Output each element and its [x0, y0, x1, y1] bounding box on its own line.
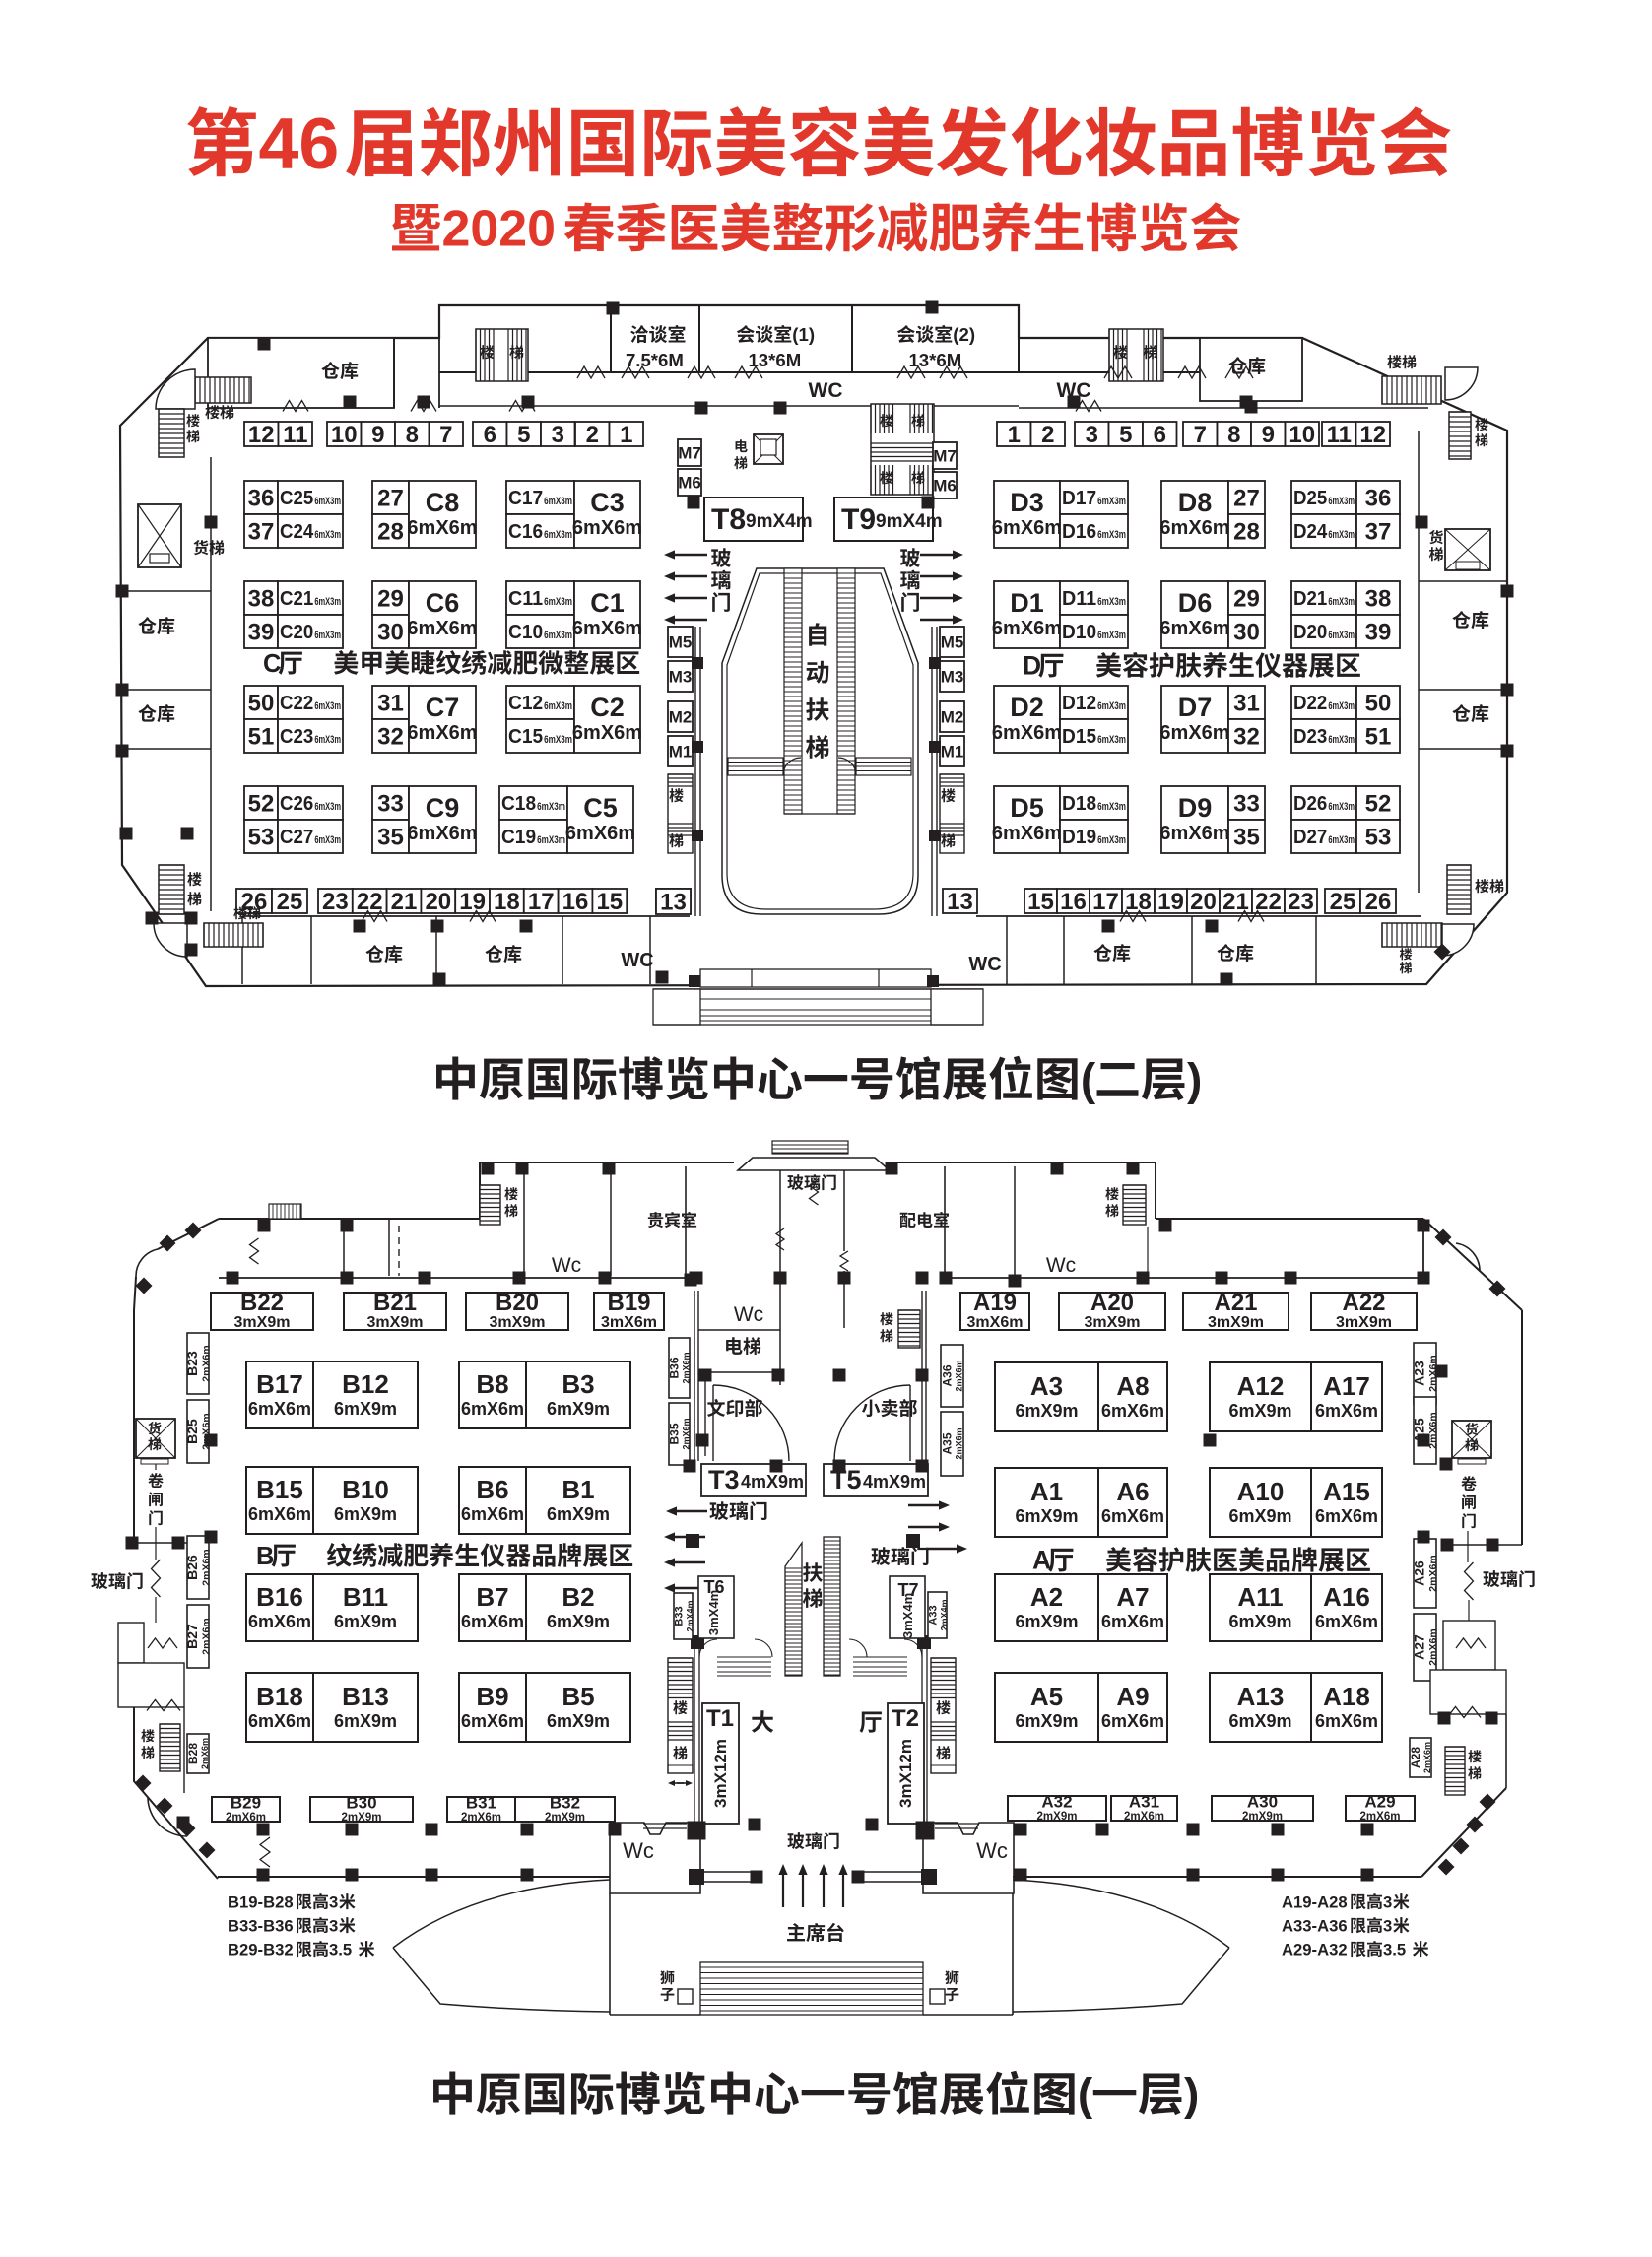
- svg-text:27: 27: [377, 486, 404, 512]
- svg-text:2mX6m: 2mX6m: [461, 1812, 501, 1824]
- svg-text:6mX6m: 6mX6m: [461, 1612, 524, 1631]
- svg-text:6mX3m: 6mX3m: [1097, 801, 1126, 813]
- svg-text:3mX9m: 3mX9m: [1085, 1314, 1141, 1331]
- svg-text:36: 36: [248, 486, 275, 512]
- svg-text:A36: A36: [941, 1364, 955, 1386]
- svg-text:B1: B1: [562, 1475, 594, 1504]
- svg-text:3.5: 3.5: [329, 1940, 352, 1958]
- svg-text:C25: C25: [280, 488, 313, 509]
- svg-text:3mX6m: 3mX6m: [967, 1314, 1024, 1331]
- svg-text:6mX3m: 6mX3m: [1328, 801, 1355, 813]
- svg-text:23: 23: [322, 889, 349, 915]
- svg-text:3mX9m: 3mX9m: [490, 1314, 546, 1331]
- svg-text:6mX3m: 6mX3m: [1328, 529, 1355, 541]
- svg-text:C10: C10: [508, 622, 543, 643]
- svg-text:50: 50: [1365, 691, 1392, 717]
- svg-text:19: 19: [459, 889, 486, 915]
- svg-text:A26: A26: [1412, 1560, 1427, 1586]
- svg-text:6mX6m: 6mX6m: [992, 722, 1062, 744]
- svg-text:(: (: [1078, 2068, 1093, 2119]
- svg-text:B5: B5: [562, 1682, 594, 1711]
- svg-text:30: 30: [377, 620, 404, 646]
- svg-text:15: 15: [596, 889, 623, 915]
- svg-text:3mX12m: 3mX12m: [711, 1739, 730, 1808]
- svg-text:2mX9m: 2mX9m: [545, 1812, 585, 1824]
- svg-text:C19: C19: [501, 827, 536, 848]
- svg-text:D19: D19: [1062, 827, 1096, 848]
- svg-text:A1: A1: [1030, 1477, 1063, 1506]
- svg-text:D18: D18: [1062, 793, 1096, 815]
- svg-text:10: 10: [331, 422, 358, 448]
- svg-text:50: 50: [248, 691, 275, 717]
- svg-text:3: 3: [1086, 422, 1098, 448]
- svg-text:B23: B23: [184, 1351, 200, 1376]
- svg-text:3mX4m: 3mX4m: [706, 1590, 721, 1635]
- svg-text:B33: B33: [674, 1606, 686, 1626]
- svg-text:D7: D7: [1178, 693, 1213, 722]
- svg-text:A33-A36: A33-A36: [1282, 1916, 1348, 1935]
- svg-text:6mX6m: 6mX6m: [407, 517, 477, 539]
- svg-text:6mX6m: 6mX6m: [248, 1711, 311, 1731]
- svg-text:A33: A33: [928, 1605, 940, 1625]
- svg-text:Wc: Wc: [1046, 1254, 1076, 1277]
- svg-text:6mX3m: 6mX3m: [314, 801, 341, 813]
- svg-text:8: 8: [406, 422, 419, 448]
- svg-text:6mX3m: 6mX3m: [537, 834, 565, 846]
- svg-text:B: B: [256, 1543, 274, 1570]
- svg-text:6mX6m: 6mX6m: [407, 722, 477, 744]
- svg-text:28: 28: [377, 519, 404, 546]
- svg-text:A29-A32: A29-A32: [1282, 1940, 1348, 1958]
- svg-text:Wc: Wc: [623, 1838, 654, 1863]
- svg-text:A32: A32: [1041, 1793, 1072, 1812]
- svg-text:B7: B7: [476, 1582, 508, 1612]
- svg-text:6mX3m: 6mX3m: [314, 630, 341, 641]
- svg-text:A16: A16: [1323, 1582, 1370, 1612]
- svg-text:53: 53: [248, 825, 275, 851]
- svg-text:21: 21: [391, 889, 418, 915]
- svg-text:6mX9m: 6mX9m: [547, 1399, 610, 1419]
- svg-text:6mX3m: 6mX3m: [314, 529, 341, 541]
- svg-text:M5: M5: [669, 633, 693, 652]
- svg-text:2mX6m: 2mX6m: [955, 1427, 964, 1459]
- svg-text:A17: A17: [1323, 1371, 1370, 1401]
- svg-text:33: 33: [377, 791, 404, 818]
- svg-text:B22: B22: [240, 1290, 284, 1316]
- svg-text:2mX6m: 2mX6m: [1360, 1811, 1401, 1823]
- svg-text:6mX6m: 6mX6m: [407, 618, 477, 639]
- svg-text:6mX6m: 6mX6m: [1315, 1401, 1378, 1421]
- svg-text:35: 35: [1233, 825, 1260, 851]
- svg-text:6mX9m: 6mX9m: [1015, 1711, 1078, 1731]
- svg-text:B17: B17: [256, 1369, 303, 1399]
- svg-text:6mX9m: 6mX9m: [334, 1399, 397, 1419]
- svg-text:37: 37: [248, 519, 275, 546]
- svg-text:3: 3: [1383, 1916, 1392, 1935]
- svg-text:32: 32: [1233, 724, 1260, 751]
- svg-text:6mX3m: 6mX3m: [1097, 734, 1126, 746]
- svg-text:6mX3m: 6mX3m: [1328, 734, 1355, 746]
- svg-text:6: 6: [1154, 422, 1166, 448]
- svg-text:3: 3: [329, 1916, 338, 1935]
- svg-text:6mX3m: 6mX3m: [1328, 630, 1355, 641]
- svg-text:2: 2: [1041, 422, 1054, 448]
- svg-text:C15: C15: [508, 726, 543, 748]
- svg-text:D27: D27: [1293, 827, 1327, 848]
- svg-text:2mX6m: 2mX6m: [201, 1345, 213, 1381]
- svg-text:3mX9m: 3mX9m: [1336, 1314, 1392, 1331]
- svg-text:A20: A20: [1090, 1290, 1134, 1316]
- svg-text:D16: D16: [1062, 521, 1096, 543]
- svg-text:6mX3m: 6mX3m: [1328, 596, 1355, 608]
- svg-text:A21: A21: [1214, 1290, 1257, 1316]
- svg-text:B3: B3: [562, 1369, 594, 1399]
- svg-text:6mX6m: 6mX6m: [1159, 517, 1229, 539]
- svg-text:6mX6m: 6mX6m: [572, 722, 642, 744]
- svg-text:6mX9m: 6mX9m: [1228, 1711, 1291, 1731]
- svg-text:16: 16: [562, 889, 589, 915]
- svg-text:17: 17: [1092, 889, 1119, 915]
- svg-text:6mX3m: 6mX3m: [1097, 496, 1126, 507]
- svg-text:6mX6m: 6mX6m: [1101, 1711, 1164, 1731]
- svg-text:B30: B30: [346, 1794, 376, 1813]
- svg-text:6mX6m: 6mX6m: [248, 1504, 311, 1524]
- svg-text:C1: C1: [590, 588, 625, 618]
- svg-text:A6: A6: [1116, 1477, 1149, 1506]
- svg-text:A29: A29: [1364, 1793, 1395, 1812]
- svg-text:51: 51: [1365, 724, 1392, 751]
- svg-text:B8: B8: [476, 1369, 508, 1399]
- svg-text:2mX6m: 2mX6m: [201, 1549, 213, 1585]
- svg-text:25: 25: [1330, 889, 1356, 915]
- svg-text:A2: A2: [1030, 1582, 1063, 1612]
- svg-text:6mX9m: 6mX9m: [1015, 1612, 1078, 1631]
- svg-text:M6: M6: [678, 474, 701, 493]
- svg-text:D25: D25: [1293, 488, 1327, 509]
- svg-text:1: 1: [620, 422, 632, 448]
- svg-text:2mX6m: 2mX6m: [201, 1618, 213, 1654]
- svg-text:B10: B10: [342, 1475, 389, 1504]
- svg-text:39: 39: [248, 620, 275, 646]
- svg-text:6mX3m: 6mX3m: [537, 801, 565, 813]
- svg-text:37: 37: [1365, 519, 1392, 546]
- svg-text:B12: B12: [342, 1369, 389, 1399]
- svg-text:Wc: Wc: [552, 1254, 581, 1277]
- svg-text:C20: C20: [280, 622, 313, 643]
- svg-text:7: 7: [439, 422, 452, 448]
- svg-text:B18: B18: [256, 1682, 303, 1711]
- svg-text:C22: C22: [280, 693, 313, 714]
- svg-text:M7: M7: [678, 444, 701, 463]
- svg-text:D8: D8: [1178, 488, 1213, 517]
- svg-text:4mX9m: 4mX9m: [741, 1472, 804, 1492]
- svg-text:6mX6m: 6mX6m: [572, 517, 642, 539]
- svg-text:22: 22: [357, 889, 383, 915]
- svg-text:2mX6m: 2mX6m: [682, 1352, 692, 1383]
- svg-text:D1: D1: [1010, 588, 1044, 618]
- svg-text:2mX6m: 2mX6m: [955, 1360, 964, 1391]
- svg-text:6mX6m: 6mX6m: [1315, 1506, 1378, 1526]
- svg-text:2mX4m: 2mX4m: [686, 1600, 695, 1631]
- svg-text:C27: C27: [280, 827, 313, 848]
- svg-text:9: 9: [1262, 422, 1275, 448]
- svg-text:26: 26: [1365, 889, 1392, 915]
- svg-text:6mX6m: 6mX6m: [407, 823, 477, 844]
- svg-text:2: 2: [586, 422, 599, 448]
- svg-text:36: 36: [1365, 486, 1392, 512]
- svg-text:6mX3m: 6mX3m: [544, 630, 572, 641]
- svg-text:6mX6m: 6mX6m: [565, 823, 635, 844]
- svg-text:C12: C12: [508, 693, 543, 714]
- svg-text:3mX6m: 3mX6m: [601, 1314, 657, 1331]
- svg-text:51: 51: [248, 724, 275, 751]
- svg-text:M1: M1: [941, 743, 964, 762]
- svg-text:B19: B19: [607, 1290, 650, 1316]
- svg-text:D15: D15: [1062, 726, 1096, 748]
- svg-text:A12: A12: [1237, 1371, 1285, 1401]
- svg-text:C8: C8: [426, 488, 460, 517]
- svg-text:6mX6m: 6mX6m: [461, 1504, 524, 1524]
- svg-text:6mX3m: 6mX3m: [314, 596, 341, 608]
- svg-text:A19-A28: A19-A28: [1282, 1892, 1348, 1911]
- svg-text:B21: B21: [373, 1290, 417, 1316]
- svg-text:6mX3m: 6mX3m: [314, 734, 341, 746]
- svg-text:C5: C5: [583, 793, 618, 823]
- svg-text:16: 16: [1060, 889, 1087, 915]
- svg-text:C26: C26: [280, 793, 313, 815]
- svg-text:B32: B32: [550, 1794, 580, 1813]
- svg-text:C24: C24: [280, 521, 314, 543]
- svg-text:19: 19: [1157, 889, 1184, 915]
- svg-text:M3: M3: [669, 668, 693, 687]
- svg-text:20: 20: [425, 889, 451, 915]
- svg-text:6: 6: [484, 422, 496, 448]
- svg-text:C: C: [263, 650, 281, 678]
- svg-text:6mX3m: 6mX3m: [314, 700, 341, 712]
- svg-text:9mX4m: 9mX4m: [746, 511, 813, 532]
- svg-text:B2: B2: [562, 1582, 594, 1612]
- svg-text:38: 38: [1365, 586, 1392, 613]
- svg-text:7: 7: [1194, 422, 1207, 448]
- svg-text:D17: D17: [1062, 488, 1096, 509]
- svg-text:13: 13: [660, 890, 687, 916]
- svg-text:C18: C18: [501, 793, 536, 815]
- svg-text:Wc: Wc: [734, 1303, 763, 1326]
- svg-text:B6: B6: [476, 1475, 508, 1504]
- svg-text:6mX6m: 6mX6m: [572, 618, 642, 639]
- svg-text:T3: T3: [708, 1465, 740, 1494]
- svg-text:3: 3: [1383, 1892, 1392, 1911]
- svg-text:B19-B28: B19-B28: [228, 1892, 294, 1911]
- svg-text:D21: D21: [1293, 588, 1327, 610]
- svg-text:A13: A13: [1237, 1682, 1285, 1711]
- svg-text:D11: D11: [1062, 588, 1096, 610]
- svg-text:27: 27: [1233, 486, 1260, 512]
- svg-text:6mX6m: 6mX6m: [1101, 1612, 1164, 1631]
- svg-text:2mX9m: 2mX9m: [1242, 1811, 1283, 1823]
- svg-text:D23: D23: [1293, 726, 1327, 748]
- svg-text:M2: M2: [941, 708, 964, 727]
- svg-text:6mX9m: 6mX9m: [547, 1612, 610, 1631]
- svg-text:2mX6m: 2mX6m: [1124, 1811, 1164, 1823]
- svg-text:6mX6m: 6mX6m: [1315, 1711, 1378, 1731]
- svg-text:T2: T2: [892, 1705, 919, 1732]
- svg-text:20: 20: [1190, 889, 1217, 915]
- svg-text:6mX6m: 6mX6m: [1101, 1506, 1164, 1526]
- svg-text:A28: A28: [1409, 1747, 1422, 1768]
- svg-text:52: 52: [248, 791, 275, 818]
- svg-text:C6: C6: [426, 588, 460, 618]
- svg-text:D5: D5: [1010, 793, 1044, 823]
- svg-text:3mX4m: 3mX4m: [900, 1593, 915, 1638]
- svg-text:3mX9m: 3mX9m: [1208, 1314, 1264, 1331]
- svg-text:C3: C3: [590, 488, 625, 517]
- svg-text:3mX12m: 3mX12m: [896, 1739, 915, 1808]
- svg-text:3.5: 3.5: [1383, 1940, 1406, 1958]
- svg-text:B15: B15: [256, 1475, 303, 1504]
- svg-text:30: 30: [1233, 620, 1260, 646]
- svg-text:6mX6m: 6mX6m: [1159, 823, 1229, 844]
- svg-text:T1: T1: [706, 1705, 734, 1732]
- svg-text:D9: D9: [1178, 793, 1213, 823]
- svg-text:M7: M7: [933, 447, 957, 466]
- svg-text:): ): [1187, 1053, 1202, 1104]
- svg-text:6mX6m: 6mX6m: [461, 1711, 524, 1731]
- svg-text:5: 5: [1119, 422, 1132, 448]
- svg-text:4mX9m: 4mX9m: [863, 1472, 926, 1492]
- svg-text:B9: B9: [476, 1682, 508, 1711]
- svg-text:39: 39: [1365, 620, 1392, 646]
- svg-text:29: 29: [377, 586, 404, 613]
- svg-text:25: 25: [277, 889, 303, 915]
- svg-text:A19: A19: [973, 1290, 1017, 1316]
- svg-text:6mX9m: 6mX9m: [1228, 1612, 1291, 1631]
- svg-text:D: D: [1023, 651, 1041, 681]
- svg-text:A22: A22: [1342, 1290, 1385, 1316]
- svg-text:A18: A18: [1323, 1682, 1370, 1711]
- svg-text:33: 33: [1233, 791, 1260, 818]
- svg-text:Wc: Wc: [976, 1838, 1008, 1863]
- svg-text:32: 32: [377, 724, 404, 751]
- svg-text:(2): (2): [953, 324, 975, 345]
- svg-text:12: 12: [248, 422, 275, 448]
- svg-text:35: 35: [377, 825, 404, 851]
- svg-text:B20: B20: [496, 1290, 539, 1316]
- svg-text:6mX3m: 6mX3m: [1097, 529, 1126, 541]
- svg-text:3: 3: [329, 1892, 338, 1911]
- svg-text:22: 22: [1255, 889, 1282, 915]
- svg-text:2mX4m: 2mX4m: [940, 1599, 950, 1630]
- svg-text:B35: B35: [668, 1423, 682, 1444]
- svg-text:6mX9m: 6mX9m: [1228, 1506, 1291, 1526]
- svg-text:D10: D10: [1062, 622, 1096, 643]
- svg-text:C16: C16: [508, 521, 543, 543]
- svg-text:5: 5: [517, 422, 530, 448]
- svg-text:B28: B28: [186, 1743, 200, 1764]
- svg-text:D20: D20: [1293, 622, 1327, 643]
- svg-text:A11: A11: [1237, 1582, 1283, 1612]
- svg-text:D12: D12: [1062, 693, 1096, 714]
- svg-text:3mX9m: 3mX9m: [367, 1314, 424, 1331]
- svg-text:B13: B13: [342, 1682, 389, 1711]
- svg-text:M6: M6: [933, 477, 957, 496]
- svg-text:18: 18: [494, 889, 520, 915]
- svg-text:C21: C21: [280, 588, 313, 610]
- svg-text:B29-B32: B29-B32: [228, 1940, 294, 1958]
- svg-text:B33-B36: B33-B36: [228, 1916, 294, 1935]
- svg-text:WC: WC: [809, 379, 843, 402]
- svg-text:6mX3m: 6mX3m: [544, 734, 572, 746]
- svg-text:1: 1: [1008, 422, 1021, 448]
- svg-text:23: 23: [1288, 889, 1314, 915]
- svg-text:): ): [1184, 2068, 1199, 2119]
- svg-text:(1): (1): [792, 324, 815, 345]
- svg-text:A: A: [1032, 1546, 1051, 1575]
- svg-text:C17: C17: [508, 488, 543, 509]
- svg-text:M5: M5: [941, 633, 964, 652]
- svg-text:6mX9m: 6mX9m: [547, 1504, 610, 1524]
- svg-text:6mX3m: 6mX3m: [314, 496, 341, 507]
- svg-text:53: 53: [1365, 825, 1392, 851]
- svg-text:A3: A3: [1030, 1371, 1063, 1401]
- svg-text:6mX3m: 6mX3m: [1097, 630, 1126, 641]
- svg-text:6mX3m: 6mX3m: [1097, 596, 1126, 608]
- svg-text:2mX6m: 2mX6m: [200, 1738, 210, 1769]
- svg-text:A15: A15: [1323, 1477, 1370, 1506]
- svg-text:9: 9: [371, 422, 384, 448]
- svg-text:6mX6m: 6mX6m: [992, 618, 1062, 639]
- svg-text:6mX6m: 6mX6m: [248, 1612, 311, 1631]
- svg-text:6mX6m: 6mX6m: [992, 517, 1062, 539]
- svg-text:6mX9m: 6mX9m: [1015, 1506, 1078, 1526]
- svg-text:6mX9m: 6mX9m: [334, 1612, 397, 1631]
- svg-text:A30: A30: [1247, 1793, 1278, 1812]
- svg-text:38: 38: [248, 586, 275, 613]
- svg-text:6mX6m: 6mX6m: [461, 1399, 524, 1419]
- svg-text:10: 10: [1289, 422, 1315, 448]
- svg-text:6mX3m: 6mX3m: [1097, 834, 1126, 846]
- svg-text:17: 17: [528, 889, 555, 915]
- svg-text:6mX3m: 6mX3m: [1328, 496, 1355, 507]
- svg-text:(: (: [1081, 1053, 1096, 1104]
- svg-text:11: 11: [283, 422, 307, 448]
- svg-text:6mX9m: 6mX9m: [334, 1711, 397, 1731]
- svg-text:A10: A10: [1237, 1477, 1285, 1506]
- svg-text:B25: B25: [184, 1419, 200, 1444]
- svg-text:2mX6m: 2mX6m: [1427, 1555, 1439, 1591]
- svg-text:2mX6m: 2mX6m: [226, 1812, 266, 1824]
- svg-text:6mX6m: 6mX6m: [1159, 618, 1229, 639]
- svg-text:6mX3m: 6mX3m: [1328, 834, 1355, 846]
- svg-text:D6: D6: [1178, 588, 1213, 618]
- svg-text:D22: D22: [1293, 693, 1327, 714]
- svg-text:6mX3m: 6mX3m: [544, 700, 572, 712]
- svg-text:C2: C2: [590, 693, 625, 722]
- svg-text:B27: B27: [184, 1624, 200, 1649]
- svg-text:D2: D2: [1010, 693, 1044, 722]
- svg-text:2mX9m: 2mX9m: [342, 1812, 382, 1824]
- svg-text:2mX6m: 2mX6m: [1427, 1628, 1439, 1665]
- svg-text:B31: B31: [466, 1794, 496, 1813]
- svg-text:T9: T9: [841, 503, 876, 536]
- svg-text:M2: M2: [669, 708, 693, 727]
- svg-text:6mX9m: 6mX9m: [1228, 1401, 1291, 1421]
- svg-text:T8: T8: [711, 503, 746, 536]
- svg-text:A9: A9: [1116, 1682, 1149, 1711]
- svg-text:B16: B16: [256, 1582, 303, 1612]
- svg-text:WC: WC: [968, 954, 1001, 975]
- svg-text:31: 31: [377, 691, 404, 717]
